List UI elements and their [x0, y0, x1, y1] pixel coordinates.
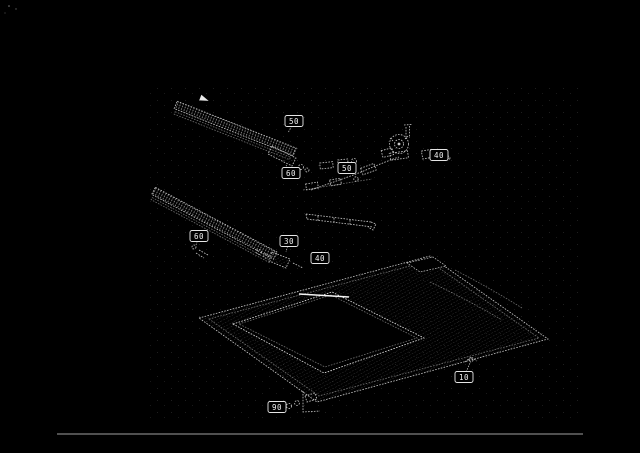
exploded-parts-diagram: 506050406030401090	[0, 0, 640, 453]
callout-number: 50	[289, 117, 299, 126]
callout-number: 10	[459, 373, 469, 382]
diagram-page: 506050406030401090	[0, 0, 640, 453]
callout-number: 40	[434, 151, 444, 160]
callout-number: 30	[284, 237, 294, 246]
callout-number: 50	[342, 164, 352, 173]
callout-50: 50	[338, 163, 356, 175]
callout-number: 60	[286, 169, 296, 178]
callout-40: 40	[311, 253, 329, 264]
callout-90: 90	[268, 402, 286, 413]
callout-40: 40	[430, 150, 448, 161]
callout-number: 90	[272, 403, 282, 412]
callout-number: 40	[315, 254, 325, 263]
callout-number: 60	[194, 232, 204, 241]
